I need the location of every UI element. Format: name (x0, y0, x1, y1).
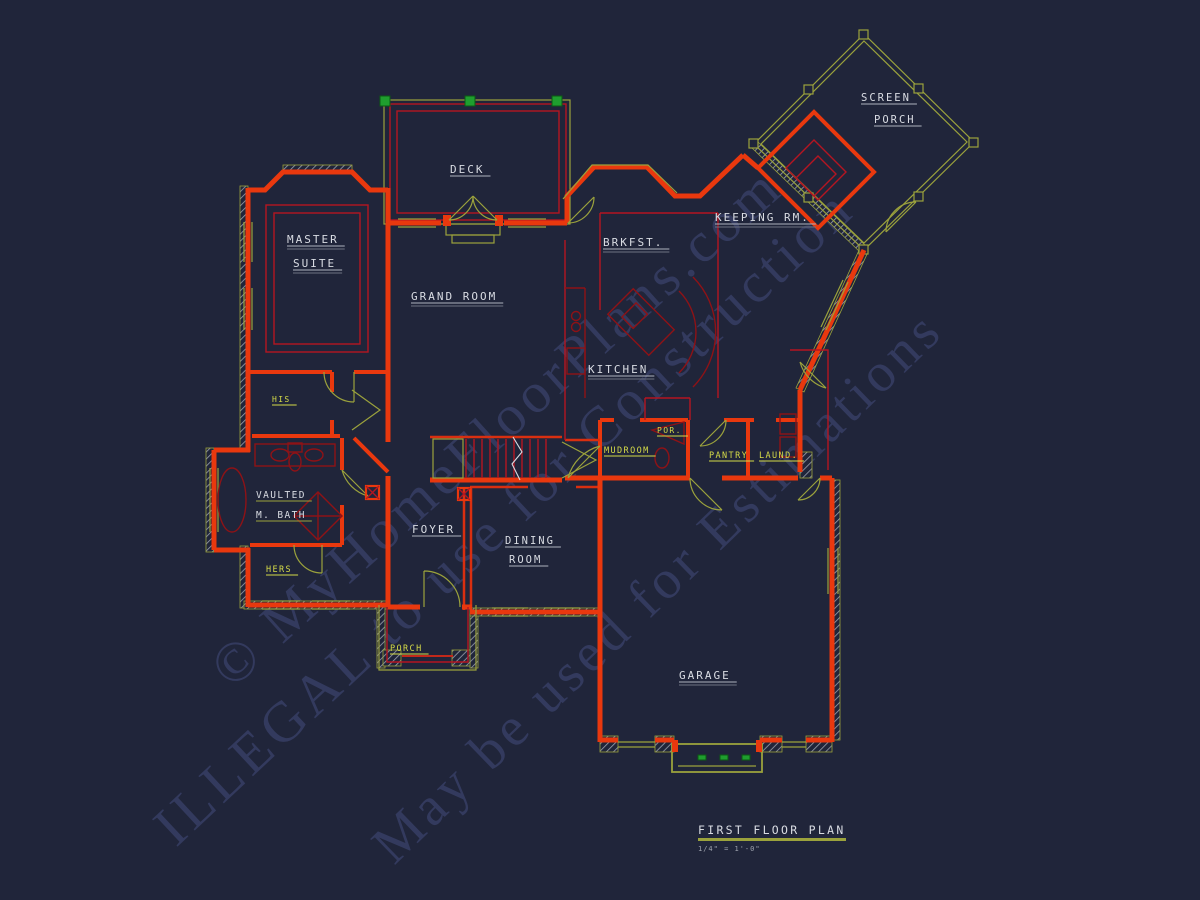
room-label-dining-2: ROOM (509, 554, 542, 566)
deck-post (552, 96, 562, 106)
room-label-master-suite-2: SUITE (293, 257, 336, 270)
title-underline (698, 838, 846, 841)
room-label-deck: DECK (450, 163, 485, 176)
room-label-laundry: LAUND. (759, 451, 798, 461)
room-label-kitchen: KITCHEN (588, 363, 648, 376)
room-label-front-porch: PORCH (390, 644, 423, 654)
room-label-brkfst: BRKFST. (603, 236, 663, 249)
room-label-his-closet: HIS (272, 395, 291, 404)
room-label-screen-porch-2: PORCH (874, 114, 916, 126)
room-label-screen-porch-1: SCREEN (861, 92, 911, 104)
room-label-master-bath-1: VAULTED (256, 490, 306, 501)
room-label-mudroom: MUDROOM (604, 446, 650, 456)
floor-plan-canvas: © MyHomeFloorPlans.comILLEGAL to use for… (0, 0, 1200, 900)
room-label-master-suite-1: MASTER (287, 233, 339, 246)
room-label-grand-room: GRAND ROOM (411, 290, 497, 303)
drawing-title: FIRST FLOOR PLAN (698, 823, 846, 837)
room-label-powder: POR. (657, 426, 682, 435)
room-label-master-bath-2: M. BATH (256, 510, 306, 521)
deck-post (380, 96, 390, 106)
room-label-foyer: FOYER (412, 523, 455, 536)
room-label-garage: GARAGE (679, 669, 731, 682)
deck-post (465, 96, 475, 106)
drawing-scale: 1/4" = 1'-0" (698, 845, 761, 853)
room-label-keeping-rm: KEEPING RM. (715, 211, 810, 224)
room-label-pantry: PANTRY (709, 451, 748, 461)
room-label-dining-1: DINING (505, 535, 555, 547)
room-label-hers-closet: HERS (266, 565, 292, 575)
